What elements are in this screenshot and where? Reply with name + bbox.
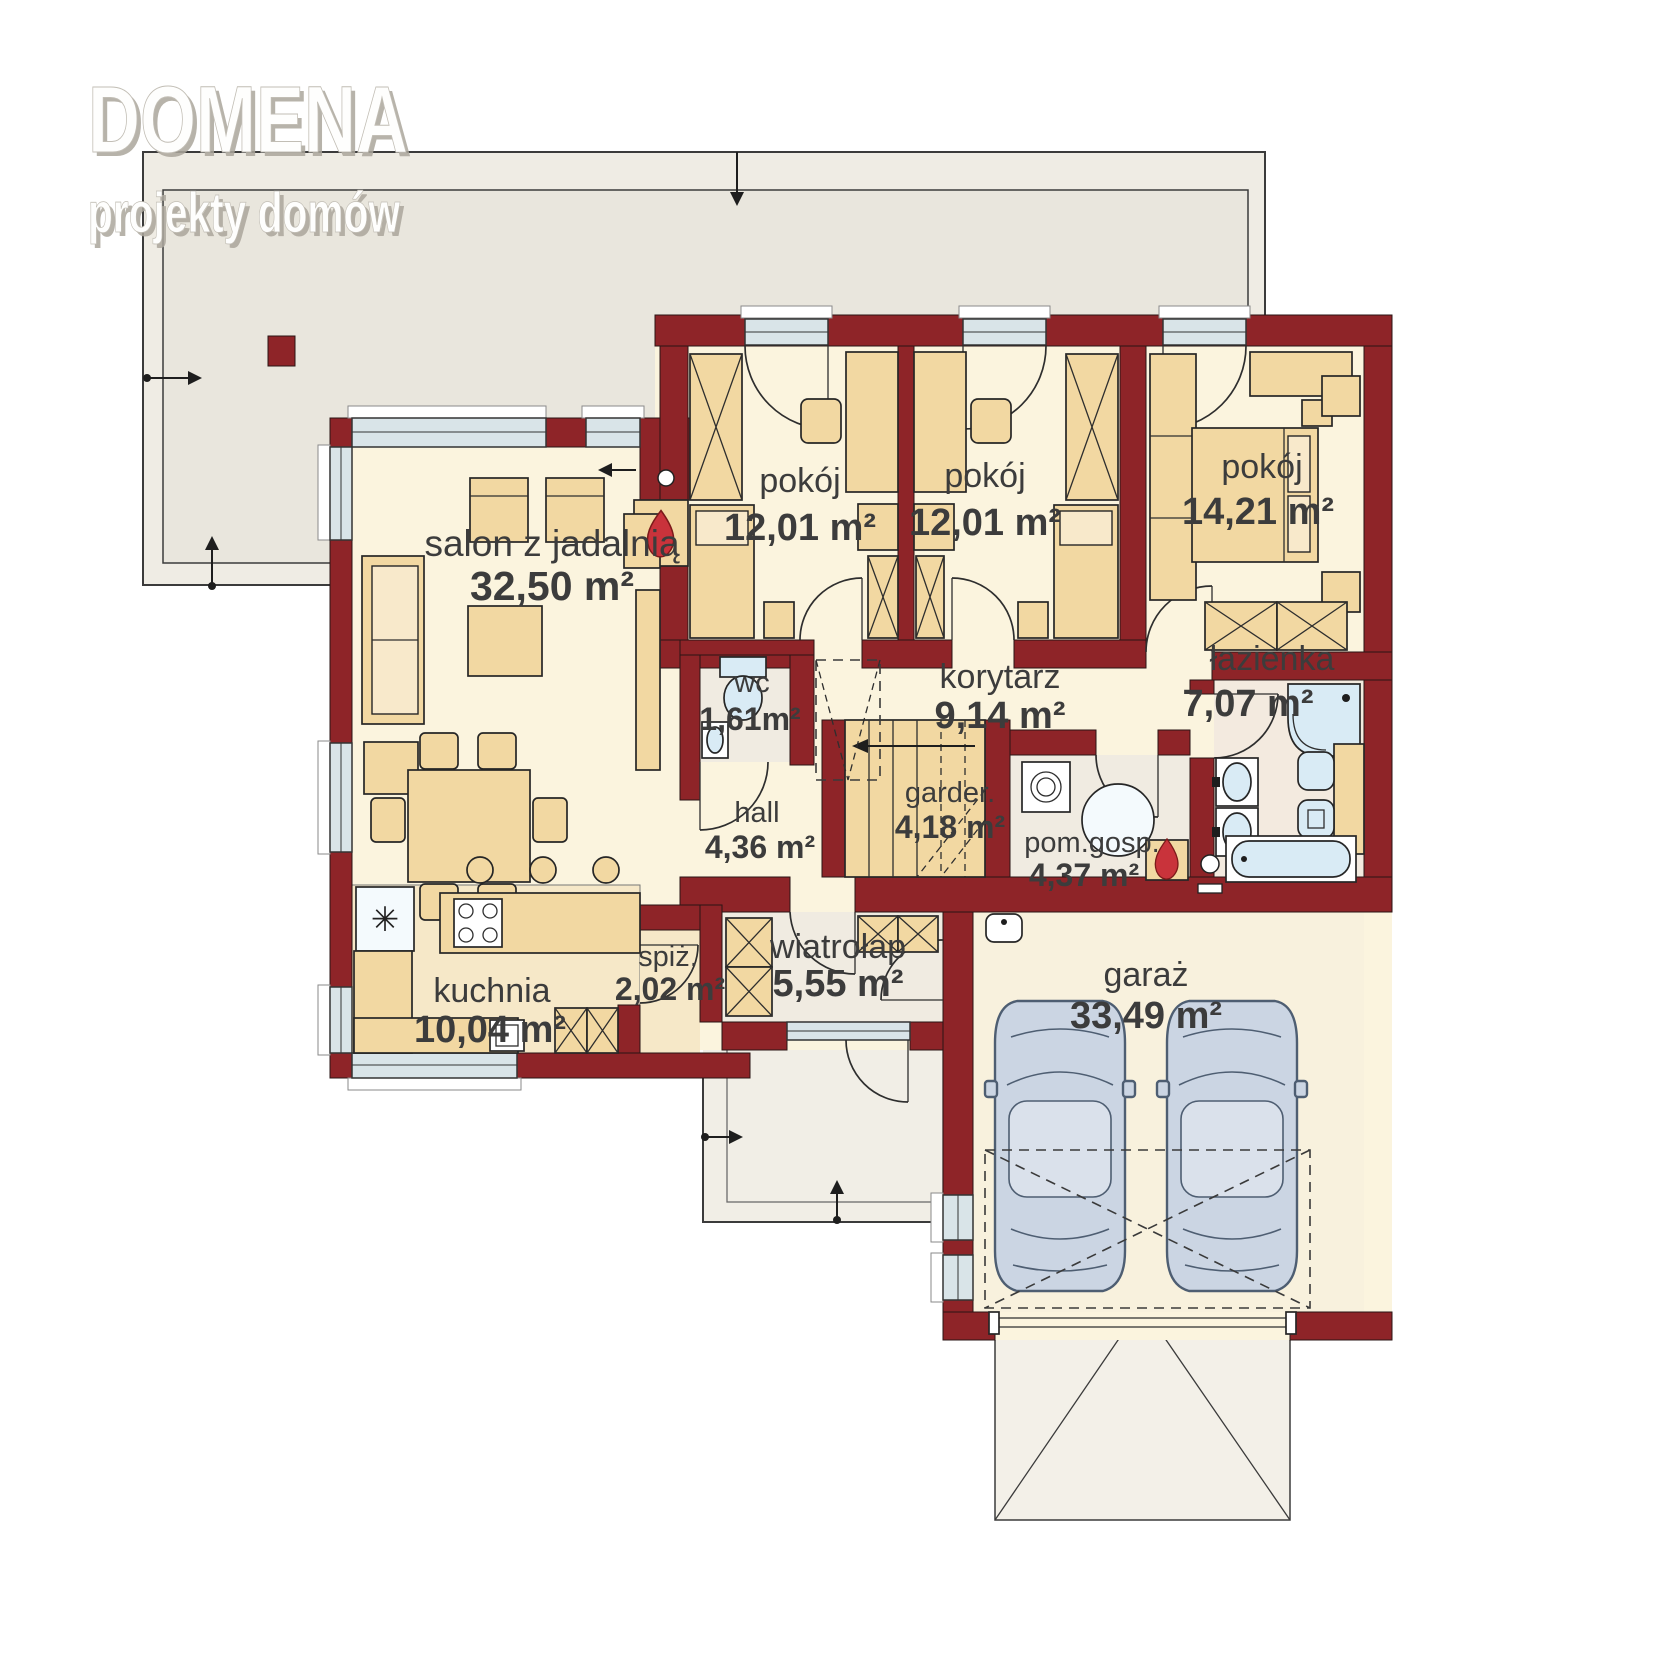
- area-pomgosp: 4,37 m²: [1029, 857, 1139, 893]
- wardrobe-bedroom-1: [690, 354, 742, 500]
- chair-bedroom-2: [971, 399, 1011, 443]
- label-lazienka: łazienka: [1210, 640, 1335, 678]
- area-garaz: 33,49 m²: [1070, 995, 1222, 1037]
- radiator: [1201, 855, 1219, 873]
- car-2: [1157, 1001, 1307, 1291]
- chimney: [268, 336, 295, 366]
- label-pokoj-3: pokój: [1221, 448, 1302, 486]
- coffee-table: [468, 606, 542, 676]
- area-pokoj-3: 14,21 m²: [1182, 491, 1334, 533]
- label-wiatrolap: wiatrołap: [769, 928, 906, 966]
- tv-cabinet: [636, 590, 660, 770]
- label-garderoba: garder.: [905, 777, 995, 809]
- label-garaz: garaż: [1103, 956, 1188, 994]
- fridge-icon: ✳: [356, 887, 414, 951]
- cabinet-strip-bedroom-3: [1150, 354, 1196, 600]
- desk-bedroom-1: [846, 352, 898, 492]
- chimney-dot: [658, 470, 674, 486]
- area-spizarnia: 2,02 m²: [615, 971, 725, 1007]
- label-pokoj-2: pokój: [944, 457, 1025, 495]
- area-wc: 1,61m²: [699, 701, 800, 737]
- label-pokoj-1: pokój: [759, 462, 840, 500]
- area-lazienka: 7,07 m²: [1183, 683, 1314, 725]
- area-korytarz: 9,14 m²: [935, 695, 1066, 737]
- wardrobe-bedroom-2: [1066, 354, 1118, 500]
- bar-stool-2: [530, 857, 556, 883]
- brand-tagline: projekty domów: [88, 181, 400, 245]
- kitchen-island: [440, 893, 640, 953]
- label-salon: salon z jadalnią: [424, 523, 679, 564]
- sofa: [362, 556, 424, 724]
- area-kuchnia: 10,04 m²: [414, 1009, 566, 1051]
- bed-bedroom-2: [1054, 505, 1118, 638]
- label-kuchnia: kuchnia: [433, 972, 550, 1010]
- area-hall: 4,36 m²: [705, 829, 815, 865]
- washing-machine: [1022, 762, 1070, 812]
- svg-text:✳: ✳: [371, 901, 400, 939]
- brand-name: DOMENA: [88, 67, 408, 173]
- floorplan-drawing: ✳: [0, 0, 1680, 1680]
- label-pomgosp: pom.gosp.: [1024, 827, 1159, 859]
- label-korytarz: korytarz: [940, 658, 1061, 696]
- nightstand-bedroom-3a: [1322, 376, 1360, 416]
- label-spizarnia: spiż.: [638, 941, 698, 973]
- bidet: [1298, 800, 1334, 838]
- area-salon: 32,50 m²: [470, 563, 634, 609]
- area-garderoba: 4,18 m²: [895, 809, 1005, 845]
- floorplan-page: ✳: [0, 0, 1680, 1680]
- chair-bedroom-1: [801, 399, 841, 443]
- area-wiatrolap: 5,55 m²: [773, 963, 904, 1005]
- garage-sink: [986, 914, 1022, 942]
- nightstand-bedroom-2: [1018, 602, 1048, 638]
- label-wc: wc: [733, 667, 769, 699]
- bathtub: [1226, 836, 1356, 882]
- bar-stool-1: [467, 857, 493, 883]
- area-pokoj-1: 12,01 m²: [724, 507, 876, 549]
- nightstand-bedroom-1: [764, 602, 794, 638]
- car-1: [985, 1001, 1135, 1291]
- toilet-bathroom: [1298, 752, 1334, 790]
- brand-logo: DOMENA DOMENA projekty domów projekty do…: [88, 67, 412, 249]
- area-pokoj-2: 12,01 m²: [909, 502, 1061, 544]
- label-hall: hall: [734, 797, 779, 829]
- bar-stool-3: [593, 857, 619, 883]
